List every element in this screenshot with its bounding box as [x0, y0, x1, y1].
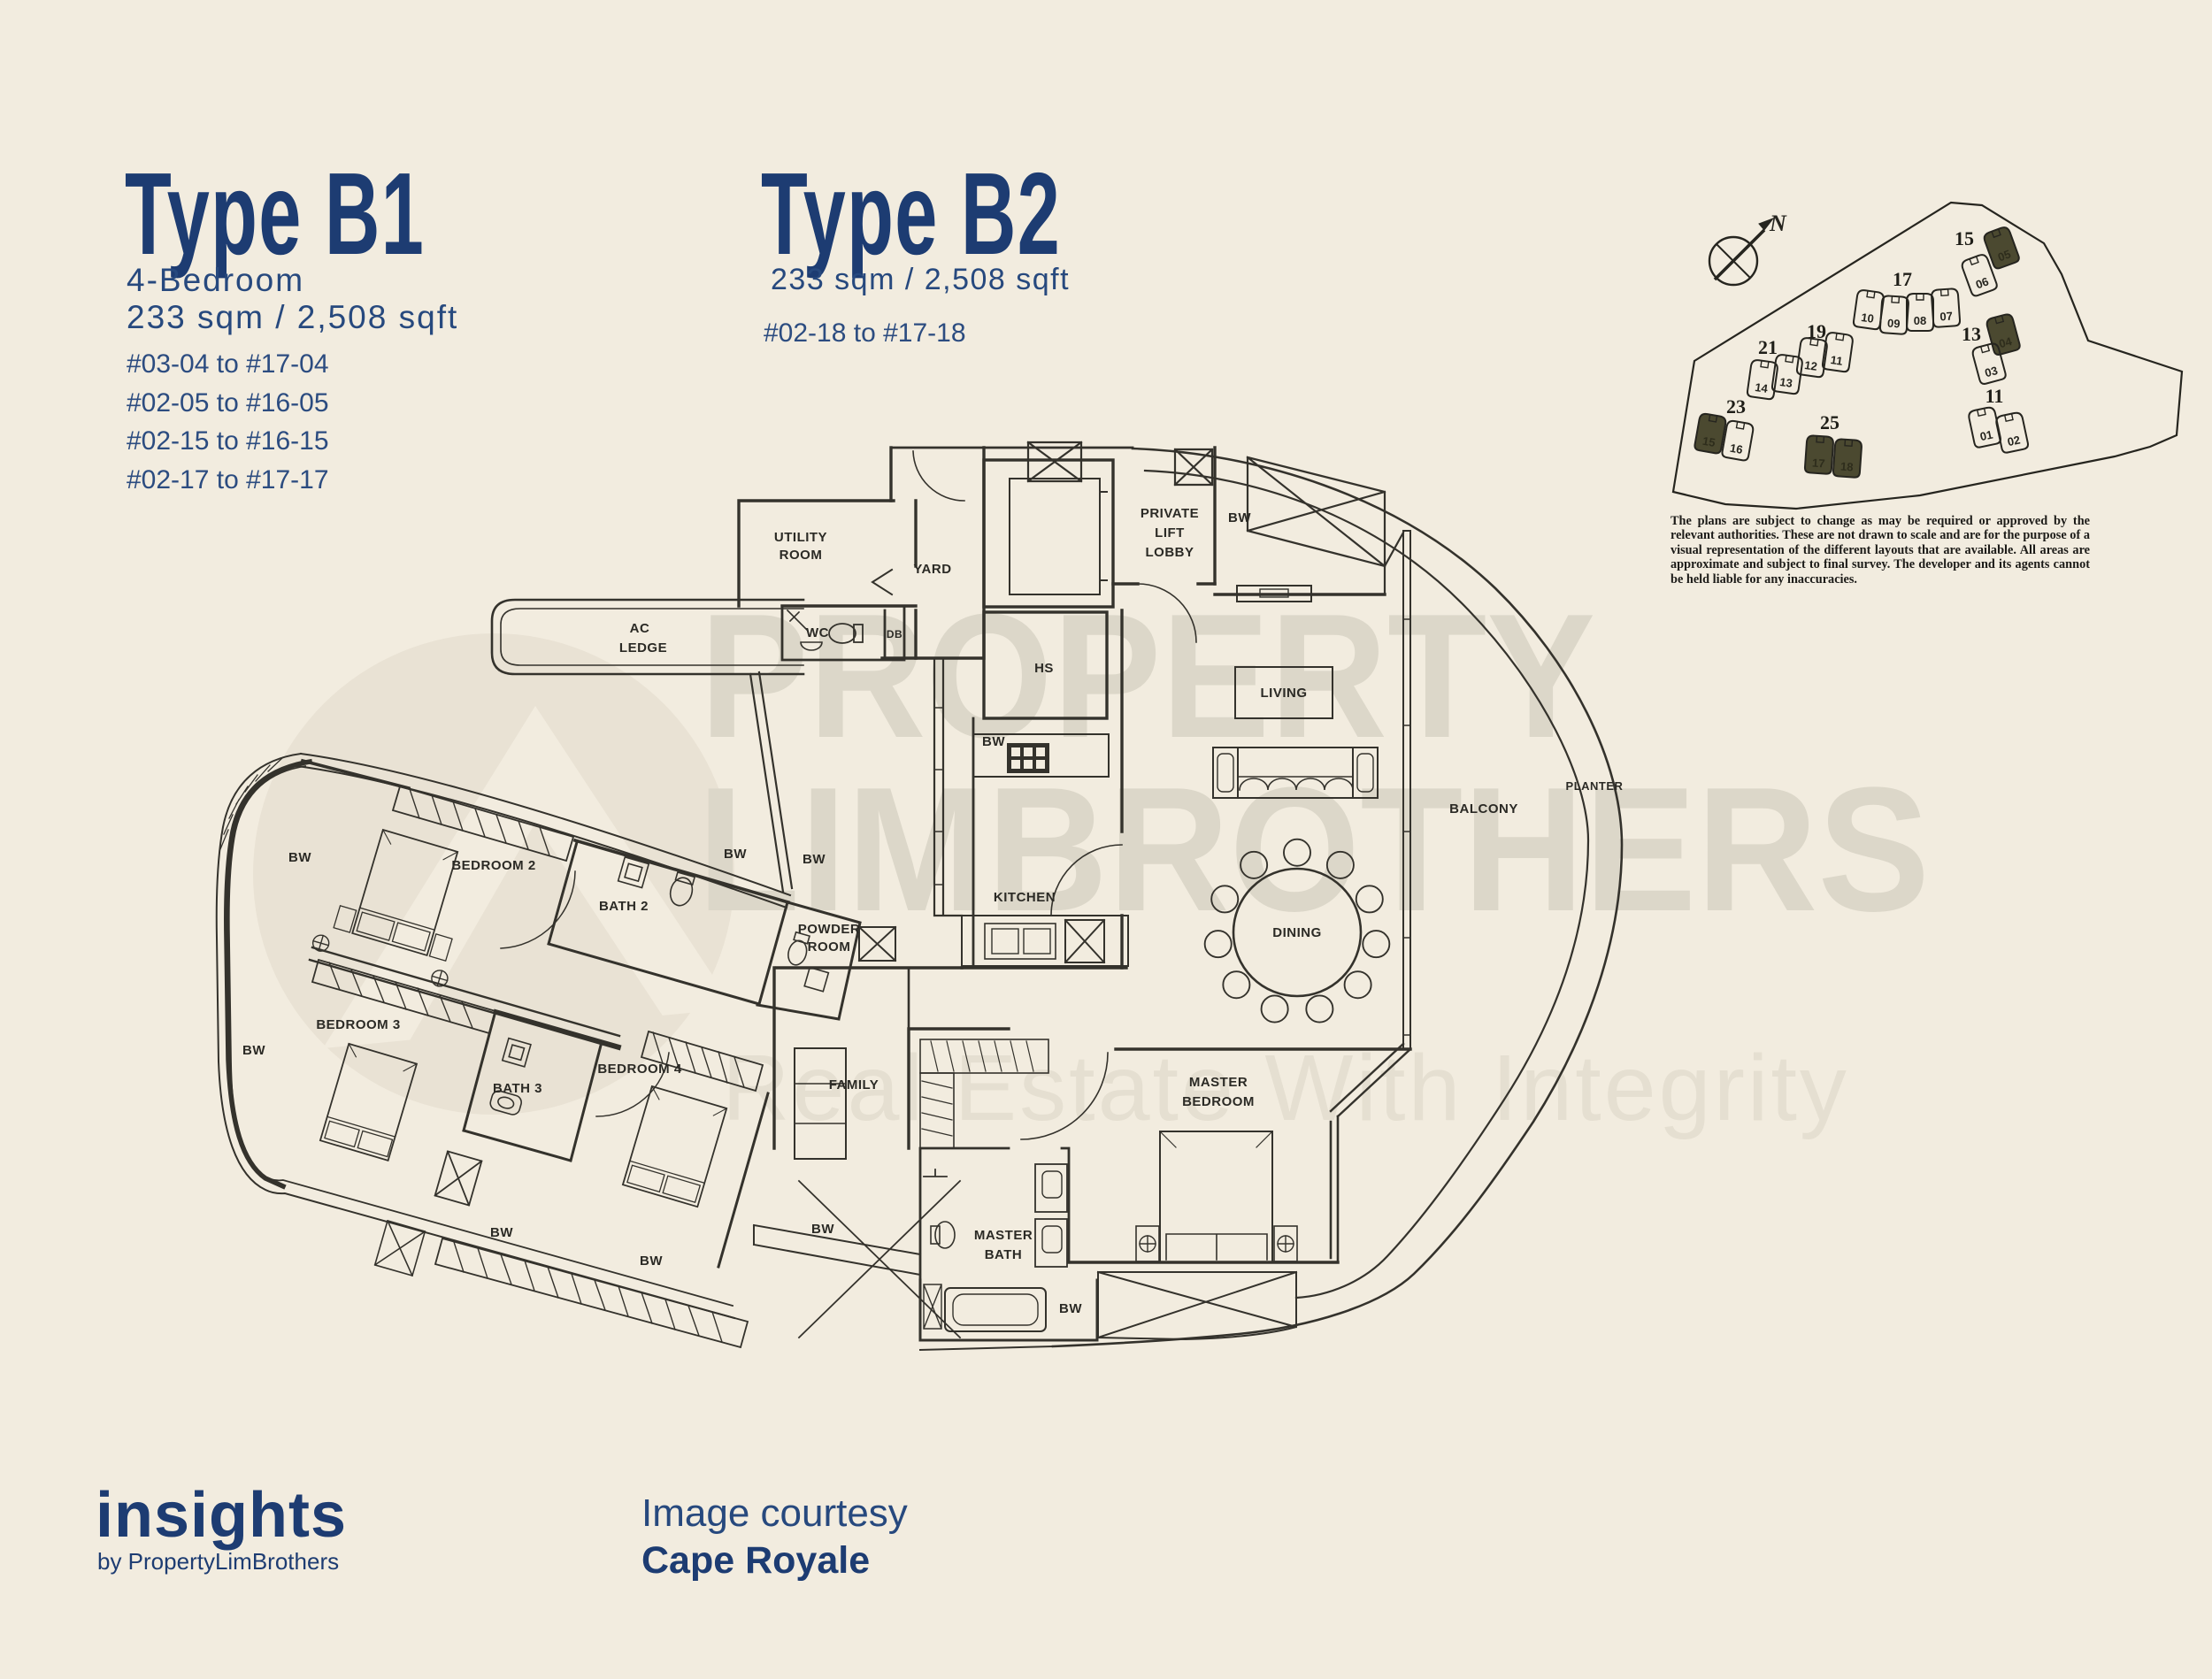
svg-text:AC: AC — [630, 621, 650, 636]
svg-text:03: 03 — [1984, 364, 2000, 379]
svg-text:13: 13 — [1962, 323, 1981, 345]
svg-text:21: 21 — [1758, 336, 1778, 358]
svg-text:LOBBY: LOBBY — [1146, 545, 1194, 560]
svg-text:25: 25 — [1820, 411, 1839, 433]
svg-text:KITCHEN: KITCHEN — [994, 890, 1056, 905]
svg-text:BW: BW — [242, 1043, 265, 1058]
svg-text:BEDROOM 2: BEDROOM 2 — [451, 858, 535, 873]
svg-text:DINING: DINING — [1272, 925, 1322, 940]
svg-text:LEDGE: LEDGE — [619, 640, 667, 655]
svg-text:18: 18 — [1840, 459, 1854, 473]
svg-text:Real Estate With Integrity: Real Estate With Integrity — [722, 1036, 1849, 1140]
svg-text:POWDER: POWDER — [798, 922, 861, 937]
svg-text:MASTER: MASTER — [974, 1228, 1033, 1243]
svg-text:BW: BW — [1228, 510, 1251, 525]
svg-text:BW: BW — [640, 1253, 663, 1269]
svg-text:11: 11 — [1985, 385, 2004, 407]
svg-text:23: 23 — [1726, 395, 1746, 418]
svg-text:WC: WC — [806, 625, 829, 640]
svg-text:ROOM: ROOM — [780, 548, 823, 563]
svg-text:01: 01 — [1978, 427, 1993, 443]
svg-text:BEDROOM 4: BEDROOM 4 — [597, 1062, 682, 1077]
svg-text:DB: DB — [887, 628, 902, 640]
svg-text:02: 02 — [2006, 433, 2021, 448]
svg-text:MASTER: MASTER — [1189, 1075, 1248, 1090]
svg-text:FAMILY: FAMILY — [829, 1077, 879, 1092]
svg-text:UTILITY: UTILITY — [774, 530, 827, 545]
svg-text:PLANTER: PLANTER — [1566, 779, 1624, 793]
svg-text:LIVING: LIVING — [1260, 686, 1307, 701]
svg-text:12: 12 — [1803, 358, 1817, 373]
svg-text:N: N — [1769, 211, 1787, 236]
svg-text:09: 09 — [1887, 316, 1901, 330]
svg-text:BW: BW — [288, 850, 311, 865]
svg-text:ROOM: ROOM — [808, 939, 851, 954]
svg-text:LIMBROTHERS: LIMBROTHERS — [697, 751, 1930, 949]
svg-text:BW: BW — [1059, 1301, 1082, 1316]
svg-text:BATH 2: BATH 2 — [599, 899, 649, 914]
svg-text:YARD: YARD — [913, 562, 951, 577]
svg-text:17: 17 — [1893, 268, 1912, 290]
svg-text:PRIVATE: PRIVATE — [1141, 506, 1199, 521]
svg-text:HS: HS — [1034, 661, 1054, 676]
svg-text:BEDROOM 3: BEDROOM 3 — [316, 1017, 400, 1032]
svg-text:BEDROOM: BEDROOM — [1182, 1094, 1255, 1109]
svg-text:15: 15 — [1955, 227, 1974, 249]
svg-text:BW: BW — [803, 852, 826, 867]
svg-text:07: 07 — [1939, 309, 1953, 323]
svg-text:BATH 3: BATH 3 — [493, 1081, 542, 1096]
svg-text:BW: BW — [490, 1225, 513, 1240]
svg-text:11: 11 — [1830, 353, 1844, 368]
svg-text:08: 08 — [1914, 314, 1926, 327]
svg-text:BW: BW — [724, 847, 747, 862]
svg-text:10: 10 — [1860, 310, 1874, 326]
svg-text:15: 15 — [1701, 434, 1717, 449]
svg-text:17: 17 — [1812, 456, 1825, 470]
svg-text:BW: BW — [982, 734, 1005, 749]
svg-text:16: 16 — [1729, 441, 1744, 456]
svg-text:13: 13 — [1778, 375, 1793, 390]
svg-text:BW: BW — [811, 1222, 834, 1237]
svg-text:14: 14 — [1754, 380, 1769, 395]
svg-text:BALCONY: BALCONY — [1449, 801, 1518, 816]
svg-text:BATH: BATH — [985, 1247, 1023, 1262]
svg-text:LIFT: LIFT — [1155, 525, 1185, 540]
svg-text:06: 06 — [1974, 274, 1991, 291]
